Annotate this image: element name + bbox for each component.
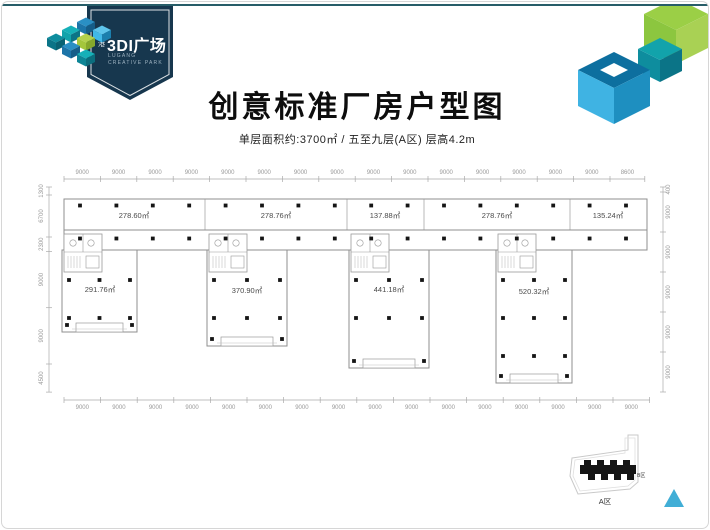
svg-text:9000: 9000 — [330, 170, 344, 176]
logo-cubes-icon — [40, 12, 122, 86]
svg-text:9000: 9000 — [405, 405, 419, 411]
svg-text:1300: 1300 — [39, 184, 45, 198]
svg-text:9000: 9000 — [76, 405, 90, 411]
floor-plan: 9000900090009000900090009000900090009000… — [2, 150, 709, 440]
svg-text:9000: 9000 — [666, 365, 672, 379]
wing-area-label: 291.76㎡ — [85, 285, 116, 294]
svg-text:9000: 9000 — [185, 405, 199, 411]
svg-text:9000: 9000 — [295, 405, 309, 411]
svg-text:9000: 9000 — [221, 170, 235, 176]
svg-text:9000: 9000 — [476, 170, 490, 176]
svg-text:9000: 9000 — [442, 405, 456, 411]
svg-text:8600: 8600 — [621, 170, 635, 176]
svg-text:9000: 9000 — [294, 170, 308, 176]
svg-text:9000: 9000 — [332, 405, 346, 411]
svg-text:9000: 9000 — [551, 405, 565, 411]
room-area-label: 278.76㎡ — [261, 211, 292, 220]
svg-text:9000: 9000 — [258, 170, 272, 176]
svg-text:9000: 9000 — [549, 170, 563, 176]
room-area-label: 278.60㎡ — [119, 211, 150, 220]
wing-area-label: 520.32㎡ — [519, 287, 550, 296]
svg-text:9000: 9000 — [148, 170, 162, 176]
entrance-notches — [72, 323, 562, 383]
page-title: 创意标准厂房户型图 — [122, 82, 592, 126]
page: 绿港 3DI广场 LUGANG CREATIVE PARK 创意标准厂房户型图 … — [1, 1, 709, 529]
site-key-map: B区 A区 — [558, 430, 708, 526]
svg-text:2300: 2300 — [39, 237, 45, 251]
title-block: 创意标准厂房户型图 单层面积约:3700㎡ / 五至九层(A区) 层高4.2m — [122, 82, 592, 147]
room-area-label: 137.88㎡ — [370, 211, 401, 220]
svg-text:9000: 9000 — [403, 170, 417, 176]
svg-text:9000: 9000 — [76, 170, 90, 176]
svg-text:9000: 9000 — [222, 405, 236, 411]
wing-area-label: 370.90㎡ — [232, 286, 263, 295]
room-area-label: 278.76㎡ — [482, 211, 513, 220]
svg-text:9000: 9000 — [367, 170, 381, 176]
svg-text:9000: 9000 — [478, 405, 492, 411]
svg-text:9000: 9000 — [625, 405, 639, 411]
svg-text:4500: 4500 — [39, 371, 45, 385]
svg-text:400: 400 — [666, 184, 672, 195]
svg-text:9000: 9000 — [588, 405, 602, 411]
svg-text:9000: 9000 — [666, 325, 672, 339]
wing-area-label: 441.18㎡ — [374, 285, 405, 294]
svg-text:9000: 9000 — [185, 170, 199, 176]
svg-text:9000: 9000 — [666, 245, 672, 259]
svg-text:9000: 9000 — [515, 405, 529, 411]
svg-text:9000: 9000 — [149, 405, 163, 411]
svg-text:9000: 9000 — [368, 405, 382, 411]
svg-text:9000: 9000 — [39, 272, 45, 286]
svg-text:9000: 9000 — [39, 329, 45, 343]
zone-a-label: A区 — [599, 497, 612, 506]
svg-text:9000: 9000 — [666, 205, 672, 219]
svg-text:9000: 9000 — [112, 405, 126, 411]
svg-text:9000: 9000 — [512, 170, 526, 176]
svg-text:9000: 9000 — [440, 170, 454, 176]
north-triangle-icon — [664, 489, 684, 507]
room-area-label: 135.24㎡ — [593, 211, 624, 220]
building-a-footprint — [580, 460, 636, 480]
svg-text:9000: 9000 — [666, 285, 672, 299]
svg-text:6700: 6700 — [39, 209, 45, 223]
page-subtitle: 单层面积约:3700㎡ / 五至九层(A区) 层高4.2m — [122, 131, 592, 147]
zone-b-label: B区 — [637, 473, 645, 479]
svg-text:9000: 9000 — [585, 170, 599, 176]
svg-text:9000: 9000 — [259, 405, 273, 411]
svg-text:9000: 9000 — [112, 170, 126, 176]
